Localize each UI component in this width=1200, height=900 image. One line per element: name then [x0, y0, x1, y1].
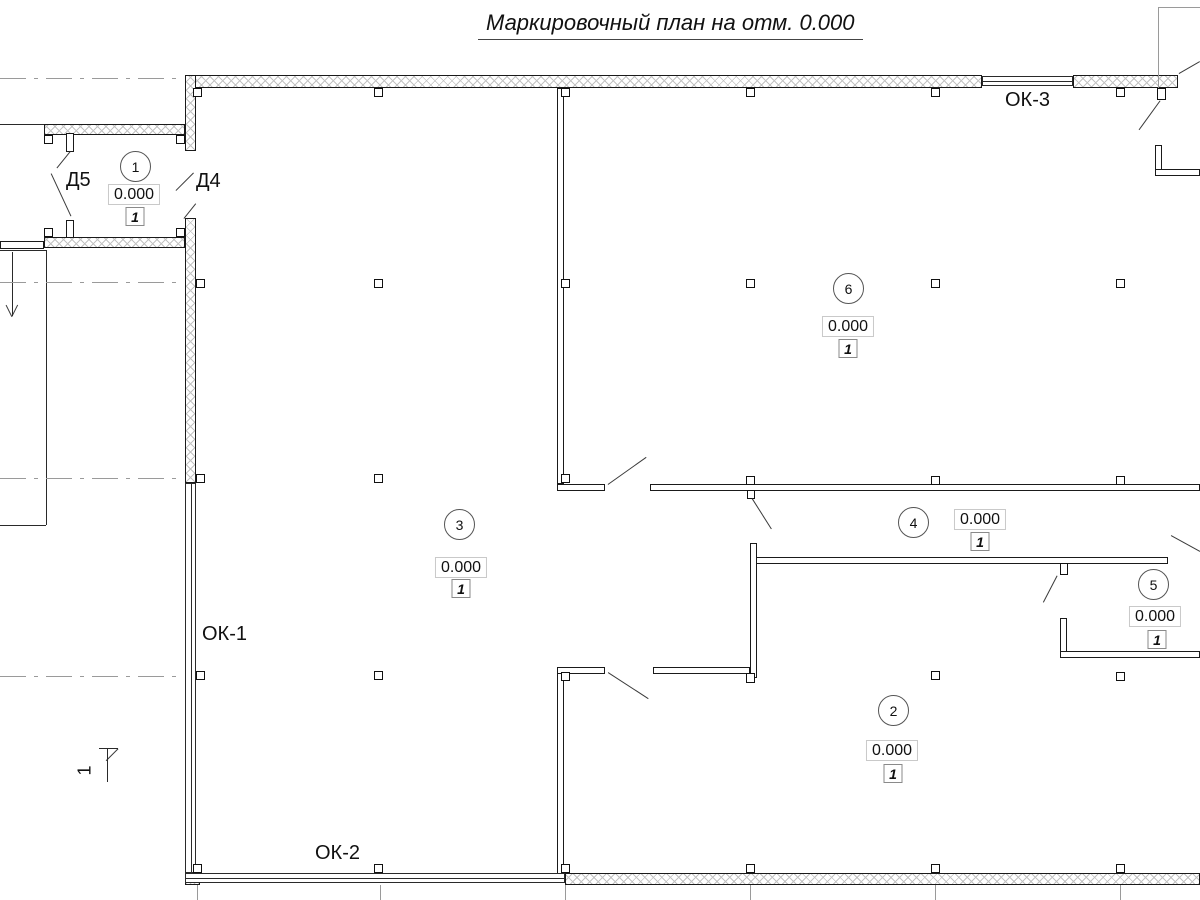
- grid-top-right-h: [1158, 7, 1200, 8]
- room-5-finish-box: 1: [1148, 630, 1167, 649]
- grid-v5: [935, 885, 936, 900]
- column-marker: [196, 671, 205, 680]
- column-marker: [374, 864, 383, 873]
- leader-top-right-corner: [1179, 61, 1200, 74]
- window-ok1-glass-line: [191, 484, 192, 872]
- grid-v2: [380, 885, 381, 900]
- window-ok1: [185, 483, 196, 873]
- column-marker: [746, 476, 755, 485]
- wall-stub-left-bottom: [0, 241, 44, 249]
- column-marker: [931, 279, 940, 288]
- entry-line-side: [46, 250, 47, 525]
- window-ok3-glass-line: [983, 81, 1072, 82]
- column-marker: [1116, 864, 1125, 873]
- door-d5-leader: [57, 152, 71, 169]
- axis-row-1: [0, 78, 183, 79]
- door-leaf-d5-lower: [66, 220, 74, 238]
- column-marker: [931, 476, 940, 485]
- column-marker: [44, 228, 53, 237]
- column-marker: [746, 279, 755, 288]
- grid-v3: [565, 885, 566, 900]
- room-2-elevation-box: 0.000: [866, 740, 918, 761]
- door-swing-mid-upper: [608, 457, 647, 485]
- axis-row-3: [0, 478, 183, 479]
- room-5-elevation-box: 0.000: [1129, 606, 1181, 627]
- column-marker: [561, 864, 570, 873]
- column-marker: [1060, 563, 1068, 575]
- room-6-finish-box: 1: [839, 339, 858, 358]
- exterior-wall-top-right: [1073, 75, 1178, 88]
- leader-top-right-column: [1138, 101, 1160, 131]
- axis-row-4: [0, 676, 183, 677]
- column-marker: [746, 864, 755, 873]
- section-arrow-crossbar: [99, 748, 118, 749]
- column-marker: [561, 672, 570, 681]
- column-marker: [1116, 279, 1125, 288]
- section-arrow-shaft: [107, 748, 108, 782]
- exterior-wall-bottom: [565, 873, 1200, 885]
- door-d4-swing-upper: [176, 173, 195, 192]
- door-label-d4: Д4: [196, 170, 221, 193]
- door-label-d5: Д5: [66, 169, 91, 192]
- column-marker: [746, 673, 755, 683]
- column-marker: [931, 864, 940, 873]
- room-number-circle-6: 6: [833, 273, 864, 304]
- leader-room4-column: [751, 499, 771, 530]
- column-marker: [1116, 476, 1125, 485]
- room-6-elevation-box: 0.000: [822, 316, 874, 337]
- column-marker: [176, 135, 185, 144]
- grid-v6: [1120, 885, 1121, 900]
- interior-wall-e: [653, 667, 750, 674]
- wall-edge-top-left: [0, 124, 44, 125]
- floor-plan-canvas: Маркировочный план на отм. 0.000 Д5Д4ОК-…: [0, 0, 1200, 900]
- exterior-wall-left-mid: [185, 218, 196, 483]
- column-marker: [1116, 672, 1125, 681]
- window-ok3: [982, 76, 1073, 86]
- room-3-elevation-box: 0.000: [435, 557, 487, 578]
- section-mark-number: 1: [75, 765, 96, 775]
- entry-arrow-shaft: [12, 252, 13, 316]
- column-marker: [561, 474, 570, 483]
- door-leaf-d5-upper: [66, 133, 74, 152]
- column-marker: [196, 279, 205, 288]
- interior-wall-h-horizontal: [1155, 169, 1200, 176]
- column-marker: [561, 279, 570, 288]
- entry-line-top: [0, 250, 46, 251]
- window-ok2: [185, 873, 565, 883]
- window-label-ok2: ОК-2: [315, 842, 360, 865]
- column-marker: [561, 88, 570, 97]
- interior-wall-c: [756, 557, 1168, 564]
- room-4-elevation-box: 0.000: [954, 509, 1006, 530]
- window-label-ok1: ОК-1: [202, 623, 247, 646]
- room-number-circle-1: 1: [120, 151, 151, 182]
- column-marker: [193, 88, 202, 97]
- column-marker: [176, 228, 185, 237]
- column-marker: [374, 279, 383, 288]
- column-marker: [747, 490, 755, 499]
- column-marker: [746, 88, 755, 97]
- column-marker: [931, 671, 940, 680]
- entry-line-bottom: [0, 525, 46, 526]
- grid-v4: [750, 885, 751, 900]
- room-number-circle-2: 2: [878, 695, 909, 726]
- column-marker: [931, 88, 940, 97]
- room-1-elevation-box: 0.000: [108, 184, 160, 205]
- room-2-finish-box: 1: [884, 764, 903, 783]
- room-4-finish-box: 1: [971, 532, 990, 551]
- column-marker: [1116, 88, 1125, 97]
- window-label-ok3: ОК-3: [1005, 89, 1050, 112]
- window-ok2-glass-line: [186, 878, 564, 879]
- column-marker: [374, 671, 383, 680]
- grid-top-right-v: [1158, 7, 1159, 88]
- column-marker: [1157, 88, 1166, 100]
- plan-title: Маркировочный план на отм. 0.000: [478, 10, 863, 40]
- interior-wall-a-return: [557, 484, 605, 491]
- column-marker: [374, 474, 383, 483]
- column-marker: [44, 135, 53, 144]
- grid-v1: [197, 885, 198, 900]
- room-3-finish-box: 1: [452, 579, 471, 598]
- vestibule-wall-bottom: [44, 237, 185, 248]
- column-marker: [193, 864, 202, 873]
- exterior-wall-left-upper: [185, 75, 196, 151]
- room-number-circle-4: 4: [898, 507, 929, 538]
- interior-wall-f: [557, 667, 564, 876]
- leader-wall-c-column: [1042, 576, 1057, 604]
- column-marker: [196, 474, 205, 483]
- exterior-wall-top-left: [185, 75, 982, 88]
- interior-wall-d: [750, 543, 757, 678]
- room-number-circle-5: 5: [1138, 569, 1169, 600]
- axis-row-2: [0, 282, 183, 283]
- leader-right-edge: [1171, 535, 1200, 552]
- room-number-circle-3: 3: [444, 509, 475, 540]
- interior-wall-b: [650, 484, 1200, 491]
- door-swing-mid-lower: [608, 672, 649, 699]
- interior-wall-g-horizontal: [1060, 651, 1200, 658]
- room-1-finish-box: 1: [126, 207, 145, 226]
- column-marker: [374, 88, 383, 97]
